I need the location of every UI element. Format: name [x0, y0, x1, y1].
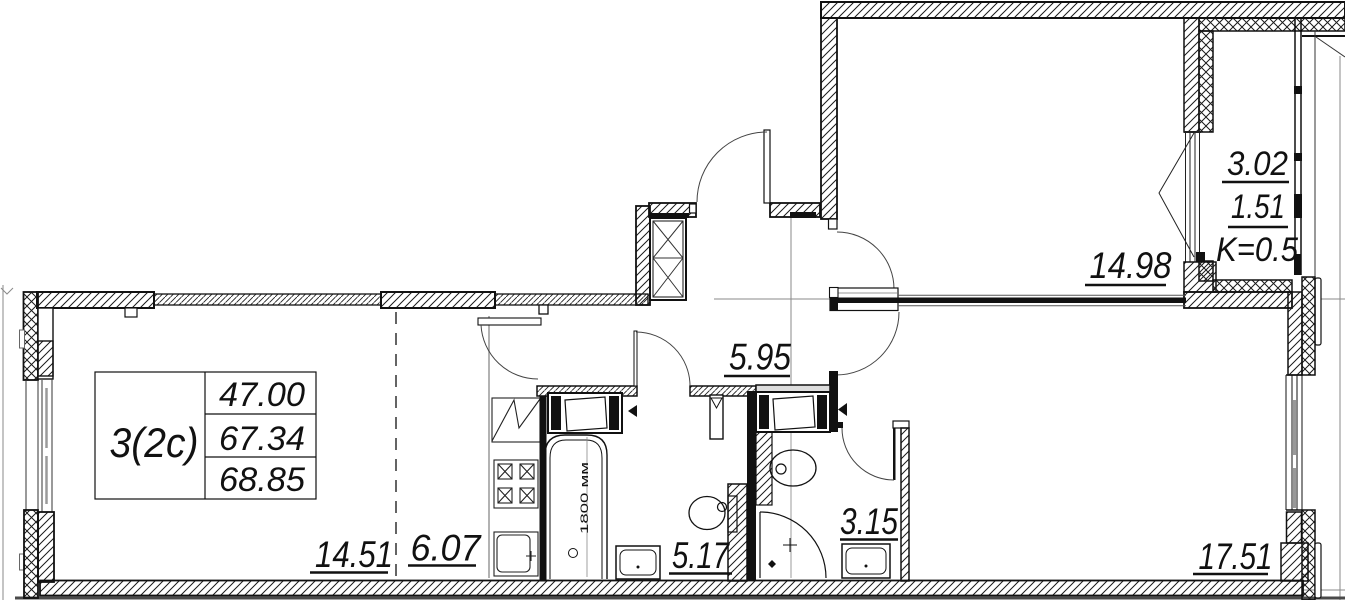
svg-text:3.02: 3.02 — [1227, 145, 1288, 183]
svg-text:6.07: 6.07 — [411, 528, 482, 569]
svg-text:14.51: 14.51 — [315, 534, 393, 575]
svg-text:67.34: 67.34 — [219, 420, 305, 458]
svg-text:1800 мм: 1800 мм — [579, 462, 591, 534]
svg-text:1.51: 1.51 — [1231, 188, 1285, 226]
svg-text:47.00: 47.00 — [219, 376, 305, 414]
svg-text:17.51: 17.51 — [1199, 536, 1273, 577]
svg-text:5.95: 5.95 — [729, 337, 791, 378]
svg-text:K=0.5: K=0.5 — [1216, 231, 1298, 269]
svg-text:3.15: 3.15 — [840, 501, 898, 542]
svg-text:5.17: 5.17 — [672, 535, 730, 576]
svg-text:68.85: 68.85 — [219, 461, 305, 499]
svg-text:14.98: 14.98 — [1090, 245, 1172, 286]
svg-text:3(2c): 3(2c) — [110, 419, 199, 466]
